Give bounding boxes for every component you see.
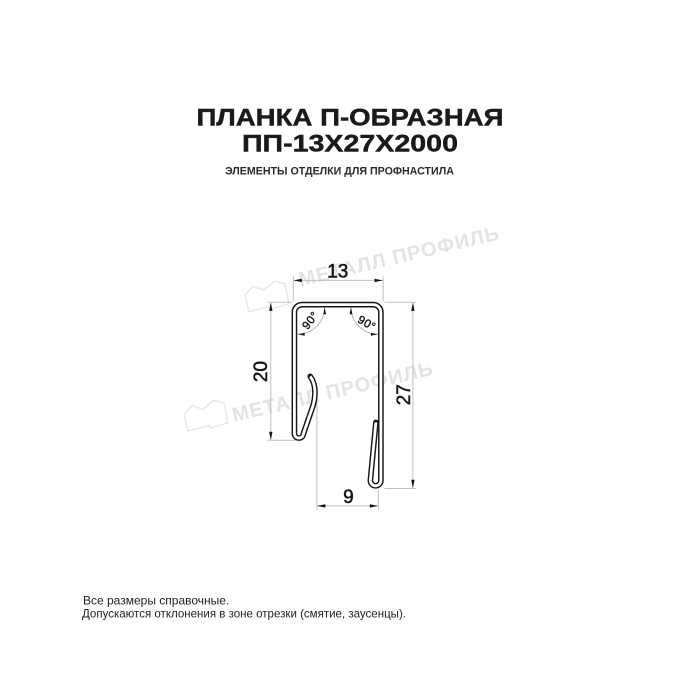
svg-text:13: 13	[327, 262, 348, 283]
svg-text:27: 27	[394, 384, 415, 405]
svg-text:9: 9	[343, 487, 354, 508]
svg-text:ПП-13Х27Х2000: ПП-13Х27Х2000	[242, 131, 458, 158]
svg-text:Допускаются отклонения в зоне: Допускаются отклонения в зоне отрезки (с…	[82, 607, 406, 621]
svg-text:ЭЛЕМЕНТЫ ОТДЕЛКИ ДЛЯ ПРОФНАСТИ: ЭЛЕМЕНТЫ ОТДЕЛКИ ДЛЯ ПРОФНАСТИЛА	[225, 166, 454, 178]
svg-text:20: 20	[251, 361, 272, 382]
svg-text:ПЛАНКА П-ОБРАЗНАЯ: ПЛАНКА П-ОБРАЗНАЯ	[197, 105, 504, 132]
svg-text:Все размеры справочные.: Все размеры справочные.	[83, 593, 229, 607]
